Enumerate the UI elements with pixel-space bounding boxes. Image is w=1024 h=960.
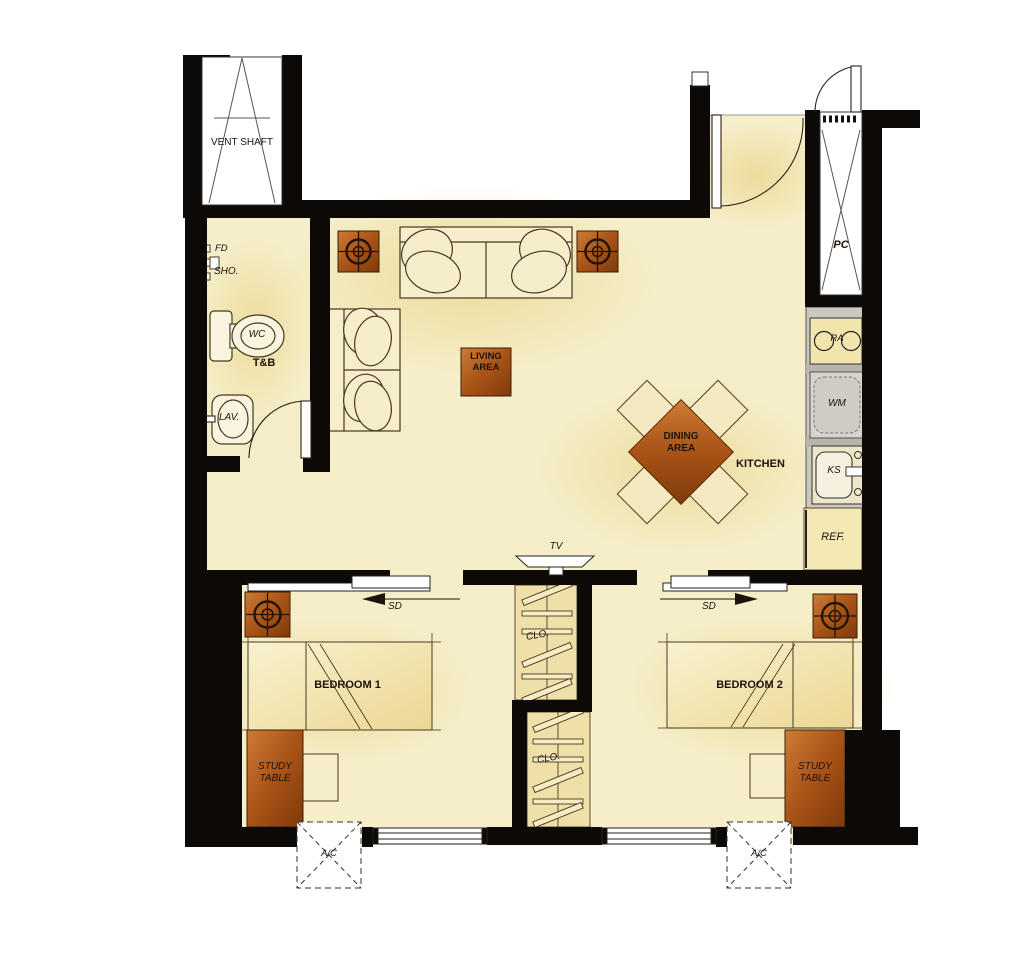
closet-2 bbox=[527, 707, 590, 827]
light-square-bedroom-2 bbox=[813, 594, 857, 638]
label-washing-machine: WM bbox=[825, 398, 849, 410]
label-dining-area: DINING AREA bbox=[641, 431, 721, 454]
closet-1 bbox=[515, 580, 577, 703]
label-shower: SHO. bbox=[214, 266, 238, 278]
light-square-living-1 bbox=[338, 231, 379, 272]
pipe-chase-box bbox=[820, 112, 862, 295]
label-pipe-chase: PC bbox=[827, 239, 855, 252]
label-kitchen: KITCHEN bbox=[736, 458, 785, 471]
window-bedroom1 bbox=[373, 828, 487, 844]
study-chair-2 bbox=[750, 754, 785, 798]
label-range: RA bbox=[827, 334, 847, 345]
label-floor-drain: FD bbox=[215, 244, 228, 255]
label-water-closet: WC bbox=[246, 329, 268, 341]
entry-column-cap bbox=[692, 72, 708, 86]
sofa-main bbox=[394, 221, 578, 300]
label-kitchen-sink: KS bbox=[822, 465, 846, 477]
label-sliding-door-2: SD bbox=[702, 601, 716, 613]
label-tv: TV bbox=[545, 541, 567, 553]
label-study-table-1: STUDY TABLE bbox=[247, 761, 303, 784]
label-living-area: LIVING AREA bbox=[461, 352, 511, 374]
label-ac-2: A/C bbox=[745, 849, 773, 860]
label-ac-1: A/C bbox=[315, 849, 343, 860]
vent-shaft-box bbox=[202, 57, 282, 205]
label-bedroom-2: BEDROOM 2 bbox=[697, 679, 802, 692]
label-bedroom-1: BEDROOM 1 bbox=[295, 679, 400, 692]
floor-plan-drawing bbox=[0, 0, 1024, 960]
entry-door-outer bbox=[815, 66, 861, 112]
window-bedroom2 bbox=[602, 828, 716, 844]
light-square-bedroom-1 bbox=[245, 592, 290, 637]
label-toilet-bath: T&B bbox=[246, 357, 282, 370]
label-refrigerator: REF. bbox=[815, 531, 851, 544]
label-lavatory: LAV. bbox=[219, 412, 239, 424]
study-chair-1 bbox=[303, 754, 338, 801]
label-sliding-door-1: SD bbox=[388, 601, 402, 613]
label-vent-shaft: VENT SHAFT bbox=[199, 137, 285, 149]
floor-plan: VENT SHAFT FD SHO. WC T&B LAV. LIVING AR… bbox=[0, 0, 1024, 960]
label-study-table-2: STUDY TABLE bbox=[785, 761, 845, 784]
sofa-side bbox=[329, 304, 400, 435]
light-square-living-2 bbox=[577, 231, 618, 272]
